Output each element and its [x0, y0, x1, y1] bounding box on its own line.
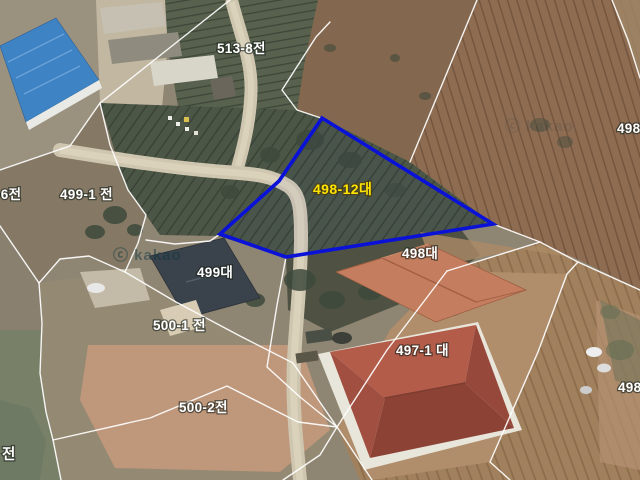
parcel-label-497-1: 497-1 대 [396, 343, 449, 358]
kakao-watermark: ⓒ kakao [113, 246, 182, 264]
map-canvas: 513-8전 -6전 499-1 전 499대 498대 500-1 전 500… [0, 0, 640, 480]
white-car [87, 283, 105, 293]
kakao-watermark-faint: ⓒ kakao [505, 117, 574, 135]
parcel-label-499: 499대 [197, 265, 233, 280]
parcel-label--6: -6전 [0, 186, 21, 202]
parcel-label-499-1: 499-1 전 [60, 186, 113, 202]
parcel-label-500-1: 500-1 전 [153, 317, 206, 333]
parcel-label-500-2: 500-2전 [179, 399, 228, 415]
satellite-map-viewport[interactable]: 513-8전 -6전 499-1 전 499대 498대 500-1 전 500… [0, 0, 640, 480]
parcel-label-498: 498대 [402, 246, 438, 261]
parcel-label-513-8: 513-8전 [217, 40, 266, 56]
parcel-label-498-right-bottom: 498 [618, 380, 640, 395]
parcel-label-498-right-top: 498 [617, 121, 640, 136]
parcel-label-jeon-bottom-left: 전 [2, 446, 16, 463]
highlighted-parcel-label: 498-12대 [313, 181, 372, 197]
